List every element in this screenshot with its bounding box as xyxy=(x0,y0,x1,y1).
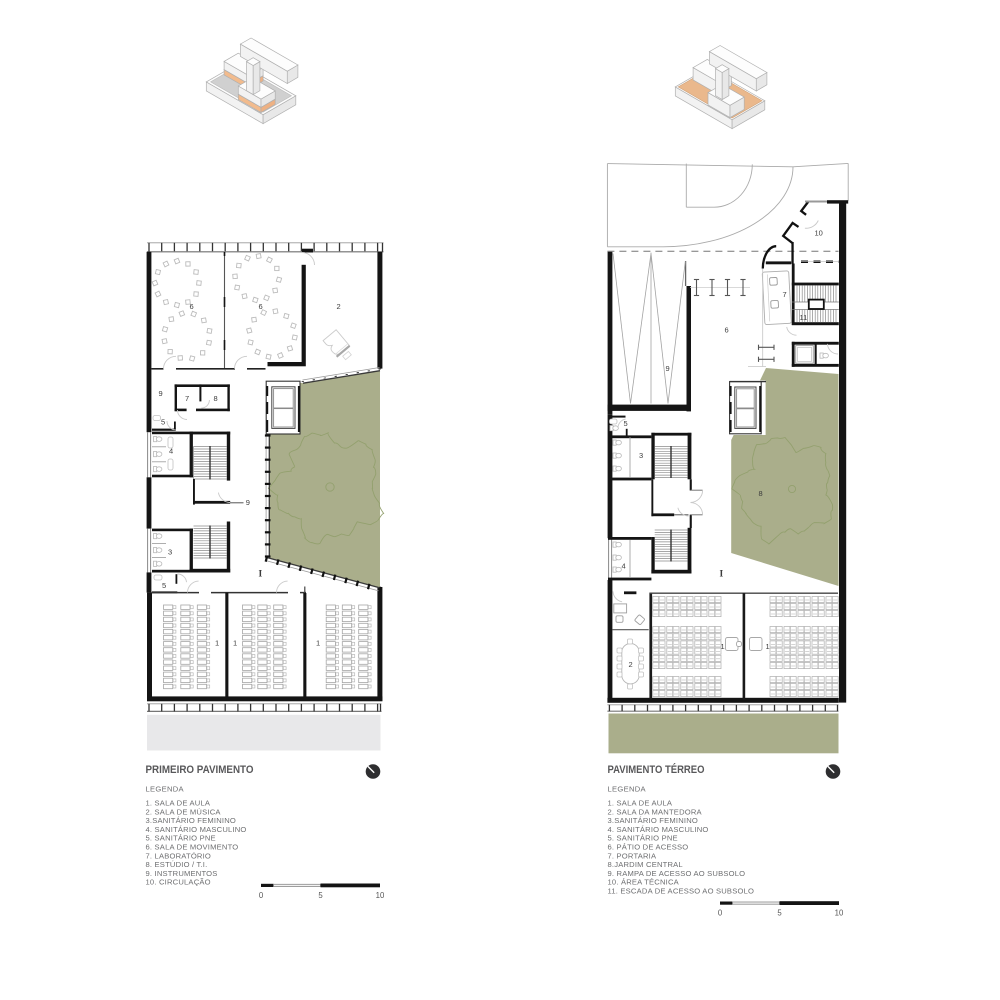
svg-text:9. RAMPA DE ACESSO AO SUBSOLO: 9. RAMPA DE ACESSO AO SUBSOLO xyxy=(608,869,746,878)
svg-text:PRIMEIRO PAVIMENTO: PRIMEIRO PAVIMENTO xyxy=(146,764,254,776)
svg-text:7. PORTARIA: 7. PORTARIA xyxy=(608,851,657,860)
svg-text:5: 5 xyxy=(161,418,165,427)
svg-text:I: I xyxy=(259,570,263,580)
svg-text:7: 7 xyxy=(185,394,189,403)
svg-text:9: 9 xyxy=(159,389,163,398)
svg-text:4: 4 xyxy=(622,562,626,571)
svg-text:2. SALA DE MÚSICA: 2. SALA DE MÚSICA xyxy=(146,807,222,816)
svg-text:1: 1 xyxy=(721,642,725,651)
svg-text:7: 7 xyxy=(783,290,787,299)
svg-text:10. CIRCULAÇÃO: 10. CIRCULAÇÃO xyxy=(146,878,211,887)
svg-text:10: 10 xyxy=(815,229,823,238)
svg-text:4. SANITÁRIO MASCULINO: 4. SANITÁRIO MASCULINO xyxy=(146,825,247,834)
svg-text:1: 1 xyxy=(215,639,219,648)
svg-text:9: 9 xyxy=(246,498,250,507)
svg-text:6: 6 xyxy=(259,302,263,311)
svg-text:3.SANITÁRIO FEMININO: 3.SANITÁRIO FEMININO xyxy=(146,816,237,825)
svg-text:1: 1 xyxy=(233,639,237,648)
svg-text:3.SANITÁRIO FEMININO: 3.SANITÁRIO FEMININO xyxy=(608,816,699,825)
svg-text:10: 10 xyxy=(835,909,844,918)
svg-text:PAVIMENTO TÉRREO: PAVIMENTO TÉRREO xyxy=(608,763,705,776)
svg-text:3: 3 xyxy=(639,451,643,460)
svg-text:LEGENDA: LEGENDA xyxy=(146,785,185,794)
svg-text:1. SALA DE AULA: 1. SALA DE AULA xyxy=(146,799,211,808)
svg-text:4. SANITÁRIO MASCULINO: 4. SANITÁRIO MASCULINO xyxy=(608,825,709,834)
svg-text:8.JARDIM CENTRAL: 8.JARDIM CENTRAL xyxy=(608,860,683,869)
svg-text:10. ÁREA TÉCNICA: 10. ÁREA TÉCNICA xyxy=(608,878,680,887)
svg-text:10: 10 xyxy=(376,891,385,900)
svg-text:7. LABORATÓRIO: 7. LABORATÓRIO xyxy=(146,851,212,860)
svg-text:9: 9 xyxy=(666,364,670,373)
svg-text:I: I xyxy=(720,570,724,580)
svg-text:1: 1 xyxy=(766,642,770,651)
svg-text:5. SANITÁRIO PNE: 5. SANITÁRIO PNE xyxy=(608,834,678,843)
svg-text:6. SALA DE MOVIMENTO: 6. SALA DE MOVIMENTO xyxy=(146,843,239,852)
svg-text:8. ESTÚDIO / T.I.: 8. ESTÚDIO / T.I. xyxy=(146,860,208,869)
svg-text:6: 6 xyxy=(190,302,194,311)
svg-text:2: 2 xyxy=(337,302,341,311)
svg-text:5. SANITÁRIO PNE: 5. SANITÁRIO PNE xyxy=(146,834,216,843)
svg-text:1. SALA DE AULA: 1. SALA DE AULA xyxy=(608,799,673,808)
svg-text:11. ESCADA DE ACESSO AO SUBSOL: 11. ESCADA DE ACESSO AO SUBSOLO xyxy=(608,887,755,896)
svg-text:5: 5 xyxy=(162,581,166,590)
svg-text:LEGENDA: LEGENDA xyxy=(608,785,647,794)
svg-text:0: 0 xyxy=(259,891,264,900)
svg-text:4: 4 xyxy=(169,447,173,456)
svg-text:8: 8 xyxy=(214,394,218,403)
svg-text:2: 2 xyxy=(629,660,633,669)
svg-text:6: 6 xyxy=(725,326,729,335)
svg-text:2. SALA DA MANTEDORA: 2. SALA DA MANTEDORA xyxy=(608,807,703,816)
svg-text:3: 3 xyxy=(168,548,172,557)
svg-text:5: 5 xyxy=(777,909,782,918)
svg-text:9. INSTRUMENTOS: 9. INSTRUMENTOS xyxy=(146,869,218,878)
svg-text:5: 5 xyxy=(624,419,628,428)
svg-text:0: 0 xyxy=(718,909,723,918)
svg-text:8: 8 xyxy=(759,489,763,498)
svg-text:5: 5 xyxy=(318,891,323,900)
svg-text:11: 11 xyxy=(800,313,808,322)
svg-text:6. PÁTIO DE ACESSO: 6. PÁTIO DE ACESSO xyxy=(608,843,689,852)
svg-text:1: 1 xyxy=(316,639,320,648)
